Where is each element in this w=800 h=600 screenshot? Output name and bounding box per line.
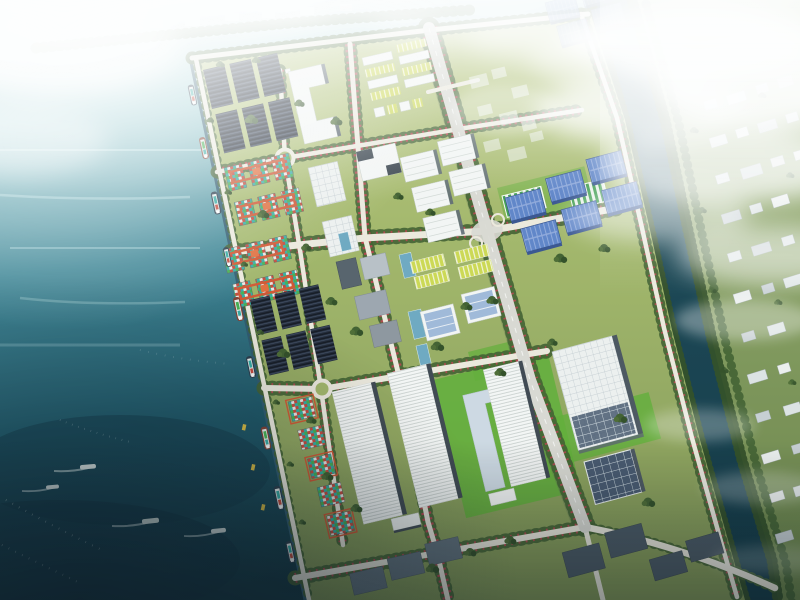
color-cast	[0, 0, 800, 600]
aerial-rendering: Coastal industrial port and logistics pa…	[0, 0, 800, 600]
rendering-canvas: Bird's-eye architectural rendering of a …	[0, 0, 800, 600]
